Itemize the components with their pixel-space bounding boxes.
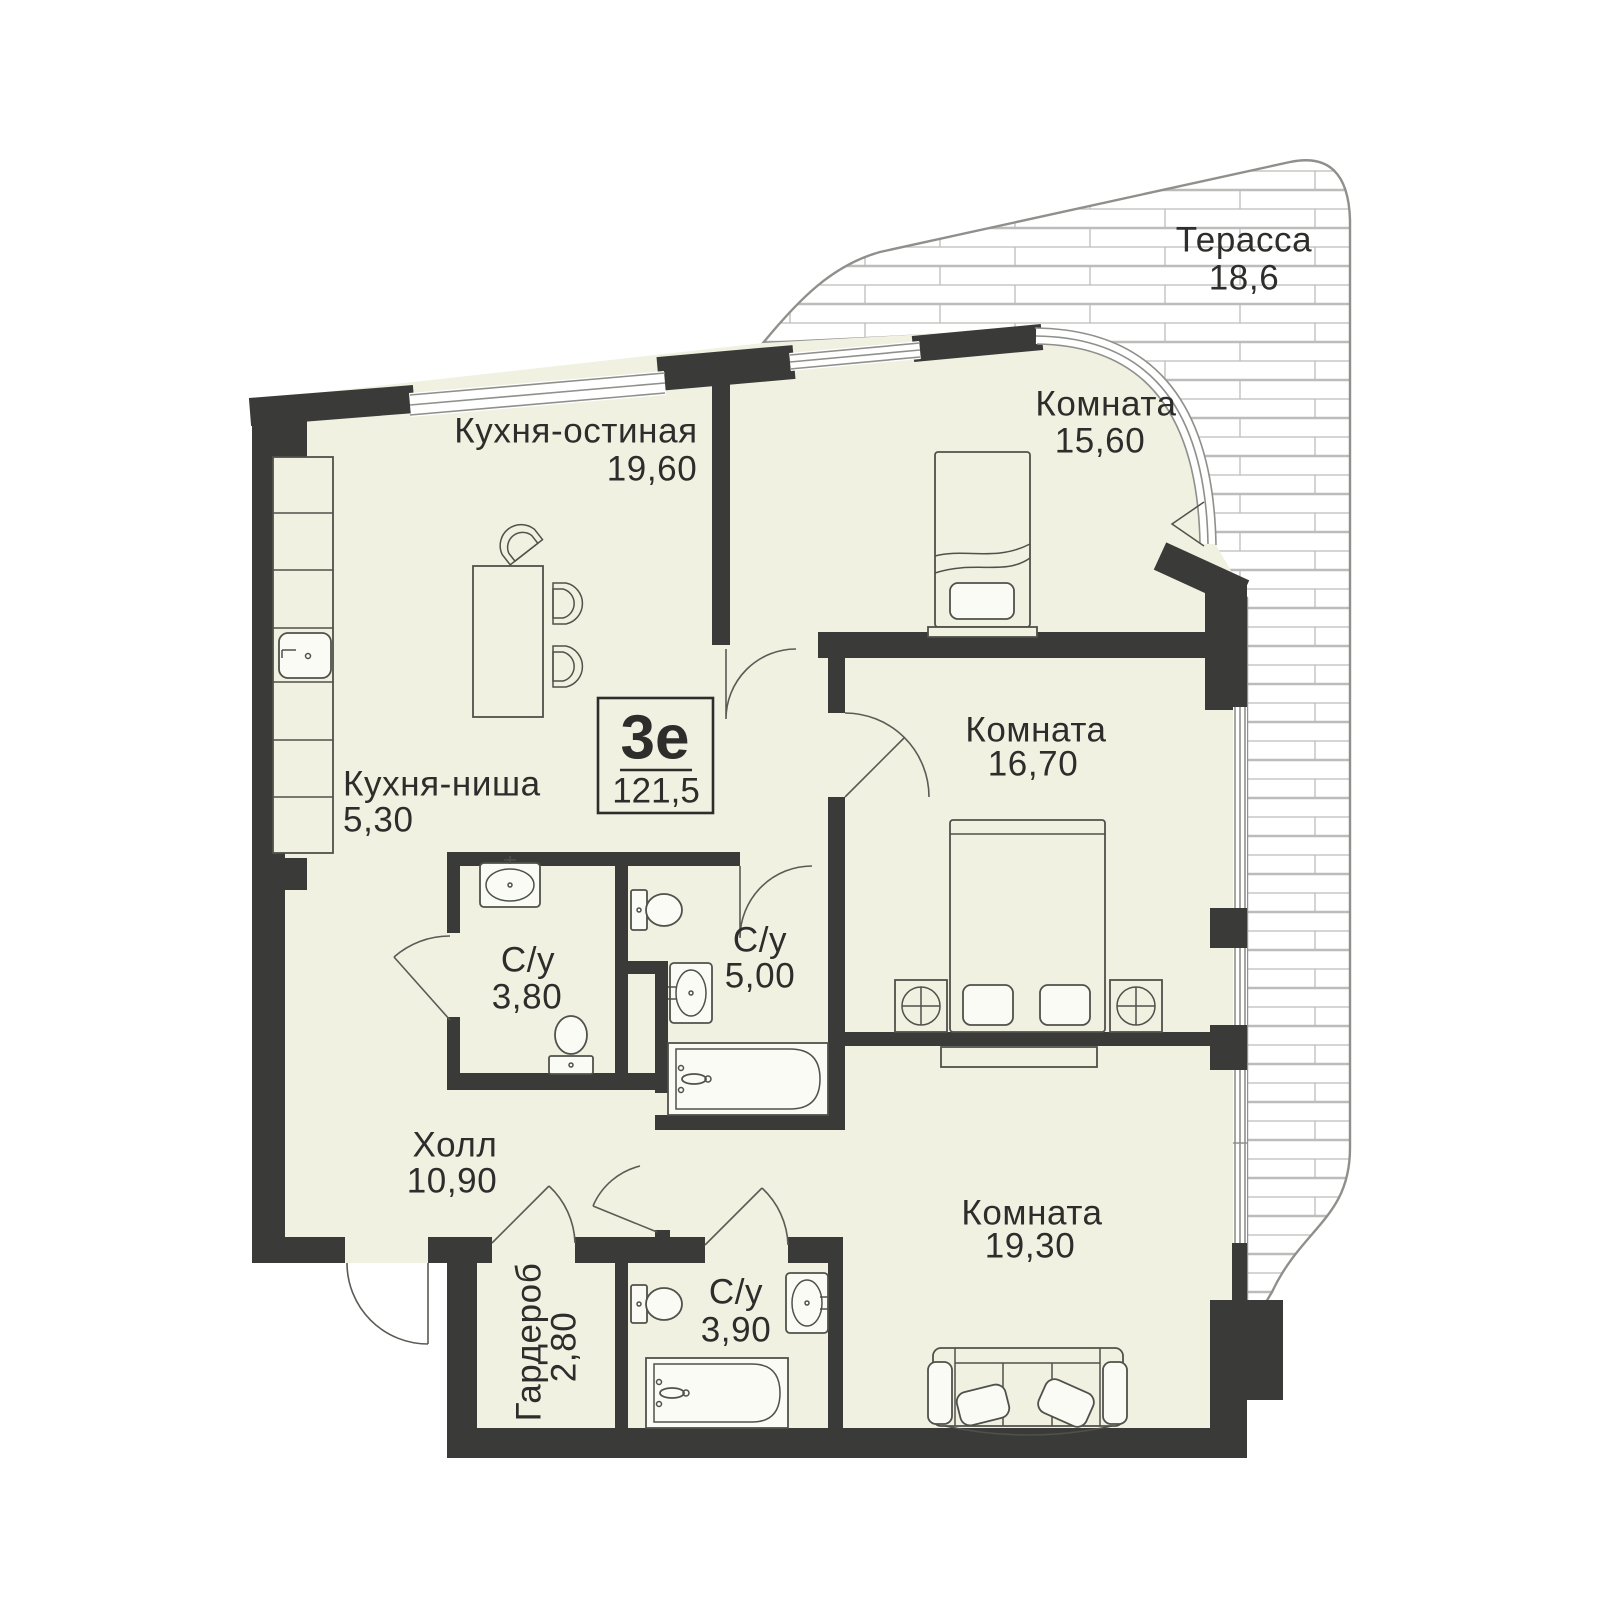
room-area-bedroom-1: 15,60: [1055, 422, 1146, 461]
console-icon: [941, 1047, 1097, 1067]
wall-segment: [250, 399, 414, 412]
pillow-icon: [963, 985, 1013, 1025]
bathtub-icon: [668, 1043, 828, 1115]
room-label-hall: Холл: [413, 1126, 498, 1165]
wall-segment: [252, 1237, 345, 1263]
wall-segment: [658, 362, 794, 374]
wall-segment: [428, 1237, 492, 1263]
wall-segment: [1232, 1243, 1247, 1303]
wall-segment: [1210, 1025, 1247, 1070]
window-bedroom-2: [1233, 707, 1247, 908]
wall-segment: [273, 858, 307, 890]
room-area-bathroom-2: 5,00: [725, 957, 796, 996]
wall-segment: [447, 1263, 477, 1458]
wall-segment: [575, 1237, 705, 1263]
wall-segment: [828, 1260, 843, 1458]
wall-segment: [788, 1237, 843, 1263]
nightstand-icon: [895, 980, 947, 1032]
bathtub-icon: [646, 1358, 788, 1428]
kitchen-counter: [273, 457, 333, 853]
sink-icon: [480, 856, 540, 907]
sofa-icon: [928, 1348, 1127, 1435]
wall-segment: [828, 797, 845, 1130]
room-label-bathroom-2: С/у: [733, 921, 787, 960]
wall-segment: [628, 852, 740, 866]
entrance-door: [347, 1263, 428, 1344]
wall-segment: [655, 1230, 670, 1243]
room-area-kitchen-niche: 5,30: [343, 801, 414, 840]
wall-segment: [447, 866, 460, 933]
room-label-bathroom-1: С/у: [501, 941, 555, 980]
wall-segment: [447, 1017, 460, 1077]
wall-segment: [655, 1115, 843, 1130]
wall-segment: [1210, 908, 1247, 948]
room-label-bedroom-1: Комната: [1035, 385, 1176, 424]
room-label-bathroom-3: С/у: [709, 1273, 763, 1312]
unit-badge: 3е 121,5: [598, 698, 713, 813]
room-label-terrace: Терасса: [1176, 221, 1312, 260]
floor-plan: Кухня-остиная 19,60 Комната 15,60 Терасс…: [0, 0, 1620, 1620]
nightstand-icon: [1110, 980, 1162, 1032]
toilet-icon: [631, 1285, 682, 1323]
sink-icon: [786, 1273, 828, 1333]
bed-icon: [928, 452, 1037, 637]
wall-segment: [913, 337, 1042, 349]
wall-segment: [1210, 1300, 1283, 1400]
room-area-bathroom-1: 3,80: [492, 978, 563, 1017]
pillow-icon: [950, 583, 1014, 619]
room-area-terrace: 18,6: [1209, 259, 1280, 298]
room-area-hall: 10,90: [407, 1162, 498, 1201]
wall-segment: [712, 378, 730, 645]
room-area-bedroom-2: 16,70: [988, 745, 1079, 784]
wall-segment: [615, 852, 628, 1087]
toilet-icon: [631, 890, 682, 930]
wall-segment: [615, 1250, 628, 1458]
unit-type: 3е: [621, 704, 690, 773]
window-bedroom-3: [1233, 1070, 1247, 1243]
room-label-kitchen-living: Кухня-остиная: [454, 412, 697, 451]
room-area-bathroom-3: 3,90: [701, 1311, 772, 1350]
unit-total-area: 121,5: [612, 772, 700, 811]
wall-segment: [828, 658, 845, 713]
wall-segment: [843, 1032, 1233, 1046]
room-label-kitchen-niche: Кухня-ниша: [343, 765, 541, 804]
wall-segment: [655, 974, 668, 1093]
floor-plan-page: Кухня-остиная 19,60 Комната 15,60 Терасс…: [0, 0, 1620, 1620]
window-bedroom-2b: [1233, 948, 1247, 1025]
wall-segment: [447, 1073, 660, 1090]
room-area-bedroom-3: 19,30: [985, 1227, 1076, 1266]
room-area-wardrobe: 2,80: [545, 1312, 584, 1383]
room-area-kitchen-living: 19,60: [607, 450, 698, 489]
wall-segment: [628, 961, 668, 974]
sink-icon: [668, 963, 712, 1023]
room-label-wardrobe: Гардероб: [510, 1263, 549, 1422]
wall-segment: [447, 1428, 1247, 1458]
pillow-icon: [1040, 985, 1090, 1025]
